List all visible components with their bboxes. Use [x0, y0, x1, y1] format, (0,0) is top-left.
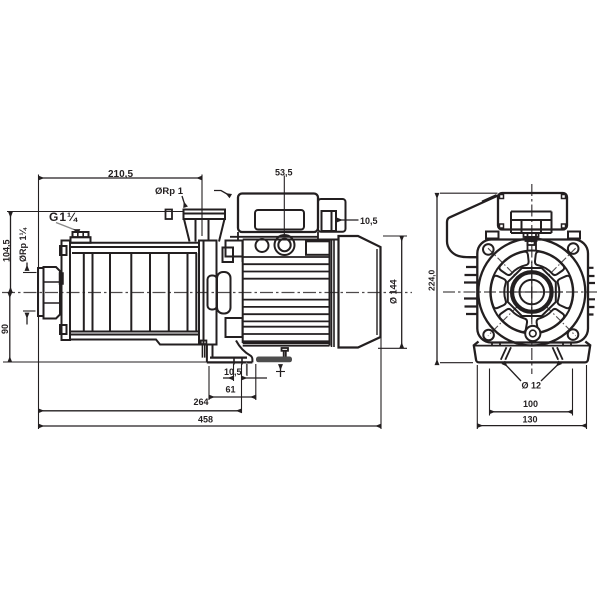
svg-text:Ø 144: Ø 144 — [389, 279, 399, 304]
svg-text:104,5: 104,5 — [2, 239, 12, 262]
svg-text:224,0: 224,0 — [427, 269, 437, 291]
svg-text:210,5: 210,5 — [108, 169, 133, 180]
svg-text:458: 458 — [198, 415, 213, 425]
svg-text:90: 90 — [0, 324, 10, 334]
svg-text:264: 264 — [194, 397, 209, 407]
svg-text:ØRp 1: ØRp 1 — [155, 186, 184, 197]
svg-text:130: 130 — [523, 415, 538, 425]
svg-text:ØRp 1¼: ØRp 1¼ — [18, 226, 28, 262]
svg-text:10,5: 10,5 — [224, 367, 242, 377]
svg-text:61: 61 — [226, 385, 236, 395]
svg-text:100: 100 — [523, 399, 538, 409]
svg-text:10,5: 10,5 — [360, 216, 378, 226]
svg-text:53,5: 53,5 — [275, 168, 293, 178]
svg-text:Ø 12: Ø 12 — [522, 381, 542, 391]
svg-text:G1¼: G1¼ — [49, 210, 78, 224]
